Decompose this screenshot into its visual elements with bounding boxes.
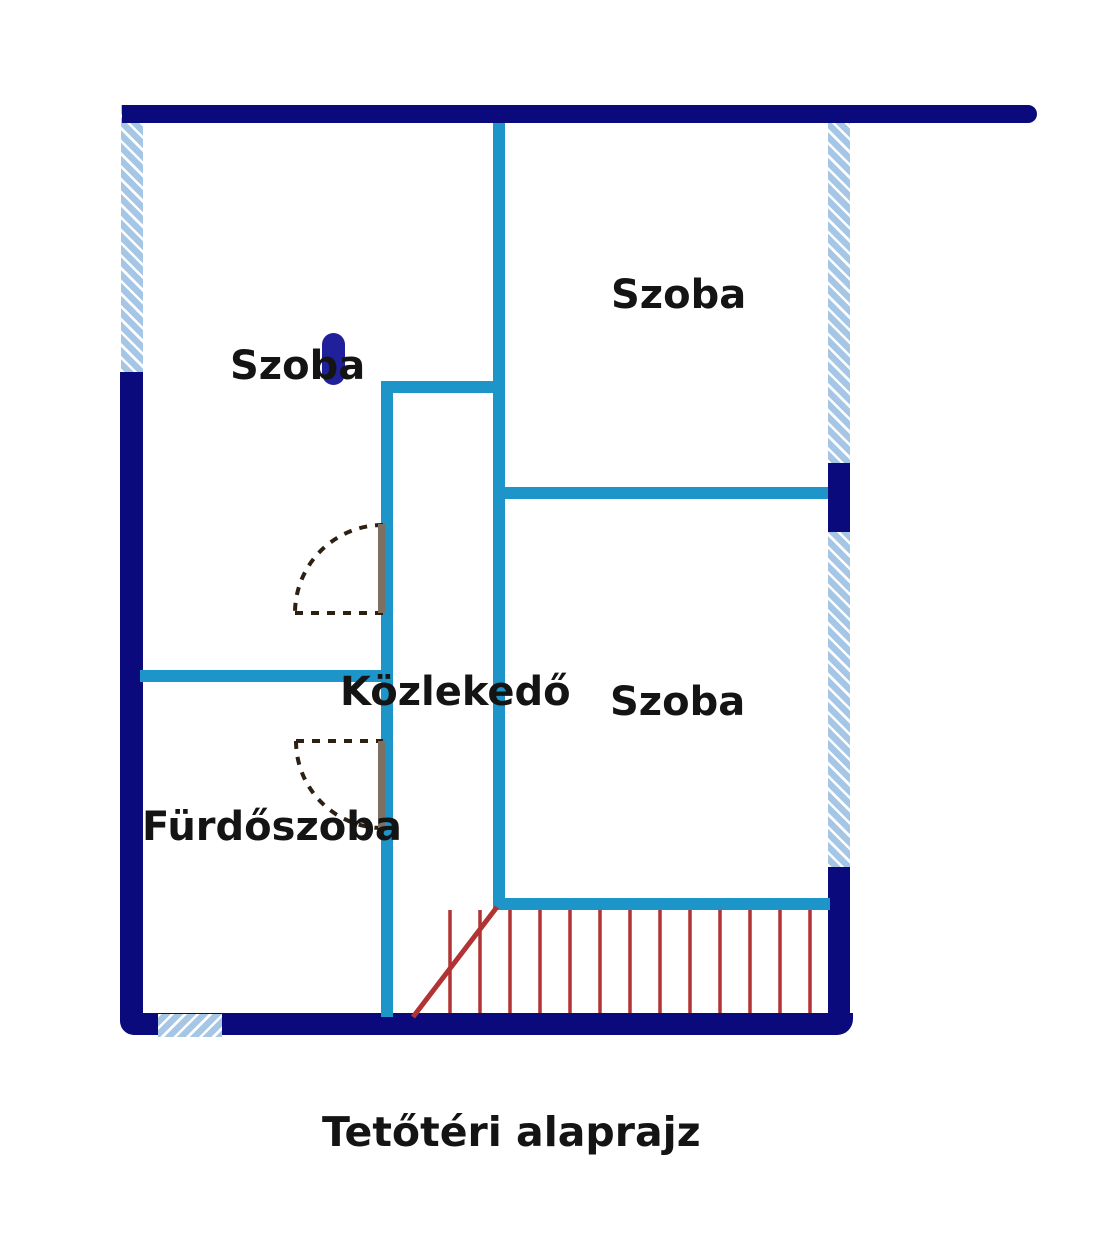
room-label-szoba-top-right: Szoba xyxy=(611,275,746,315)
stair-diagonal-edge xyxy=(413,907,497,1017)
door-upper-swing-arc xyxy=(295,525,383,613)
plan-title: Tetőtéri alaprajz xyxy=(322,1112,701,1153)
room-label-szoba-right: Szoba xyxy=(610,682,745,722)
stair-treads xyxy=(450,910,810,1013)
floor-plan: Szoba Szoba Szoba Közlekedő Fürdőszoba T… xyxy=(0,0,1100,1240)
door-upper-leaf xyxy=(378,524,385,613)
room-label-szoba-left: Szoba xyxy=(230,346,365,386)
room-label-furdoszoba: Fürdőszoba xyxy=(142,807,402,847)
room-label-kozlekedo: Közlekedő xyxy=(340,672,571,712)
doors-and-stairs-overlay xyxy=(0,0,1100,1240)
